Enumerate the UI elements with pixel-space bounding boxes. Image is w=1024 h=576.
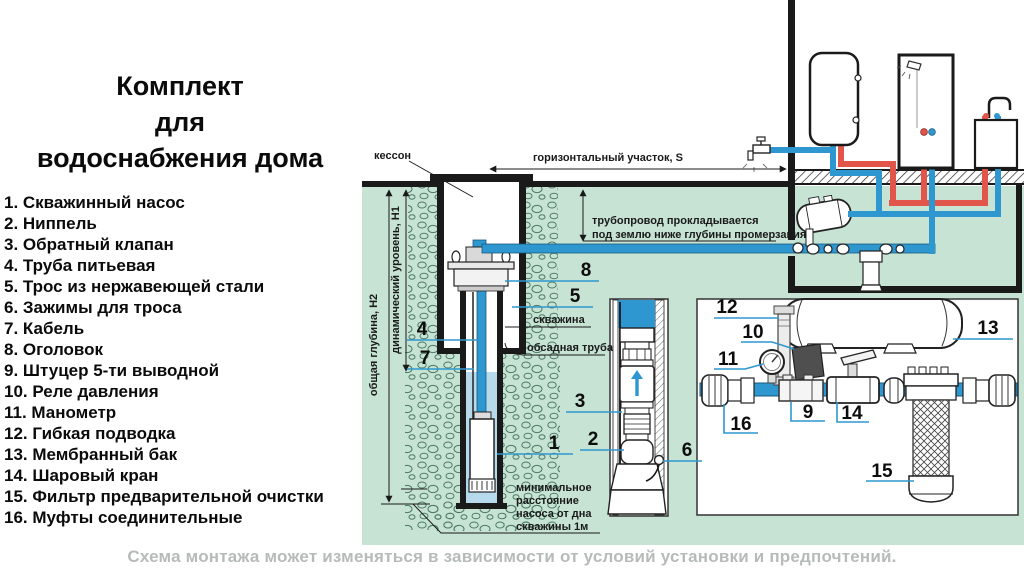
svg-text:расстояние: расстояние: [516, 495, 579, 507]
callout-14: 14: [841, 403, 863, 424]
callout-11: 11: [718, 349, 739, 370]
coupling-right: [963, 375, 1015, 406]
svg-text:скважины 1м: скважины 1м: [516, 521, 588, 533]
footer-caption: Схема монтажа может изменяться в зависим…: [0, 547, 1024, 567]
callout-15: 15: [871, 461, 893, 482]
callout-4: 4: [417, 319, 428, 340]
caisson-lid: [430, 174, 533, 182]
callout-12: 12: [716, 297, 737, 318]
min-distance-note: минимальное: [516, 482, 592, 494]
nipple-detail: [624, 414, 650, 434]
page: Комплект для водоснабжения дома 1. Скваж…: [0, 0, 1024, 576]
callout-8: 8: [581, 260, 592, 281]
casing-wall: [460, 290, 466, 504]
total-depth-label: общая глубина, Н2: [368, 294, 380, 396]
pump-detail-panel: [608, 299, 668, 516]
cold-knob: [929, 129, 936, 136]
hot-knob: [921, 129, 928, 136]
caisson-label: кессон: [374, 150, 411, 162]
svg-text:под землю ниже глубины промерз: под землю ниже глубины промерзания: [592, 229, 806, 241]
pipeline-note: трубопровод прокладывается: [592, 215, 759, 227]
check-valve-detail: [620, 360, 654, 408]
water-heater: [810, 53, 861, 145]
installation-diagram: общая глубина, Н2 динамический уровень, …: [0, 0, 1024, 576]
callout-5: 5: [570, 286, 581, 307]
callout-9: 9: [803, 402, 814, 423]
outdoor-tap: [743, 137, 770, 172]
drop-pipe: [477, 288, 486, 424]
horizontal-section-label: горизонтальный участок, S: [533, 152, 683, 164]
callout-7: 7: [420, 348, 431, 369]
union-coupling: [884, 378, 904, 403]
callout-16: 16: [730, 414, 751, 435]
callout-10: 10: [742, 322, 763, 343]
shower-cabin: [897, 55, 953, 168]
house-wall: [788, 0, 795, 240]
callout-1: 1: [549, 433, 560, 454]
coupling-left: [702, 375, 754, 406]
dynamic-level-label: динамический уровень, Н1: [390, 206, 402, 354]
borehole-pump: [469, 412, 495, 492]
casing-wall: [497, 290, 503, 504]
kitchen-sink: [975, 98, 1017, 168]
basement-floor: [788, 286, 1022, 293]
ground-line: [362, 181, 437, 187]
callout-6: 6: [682, 440, 693, 461]
callout-13: 13: [977, 318, 998, 339]
callout-2: 2: [588, 429, 599, 450]
cable-clamp: [655, 456, 664, 465]
borehole-label: скважина: [533, 314, 586, 326]
casing-pipe-label: обсадная труба: [527, 342, 614, 354]
callout-3: 3: [575, 391, 586, 412]
svg-text:насоса от дна: насоса от дна: [516, 508, 592, 520]
membrane-tank: [782, 299, 962, 353]
